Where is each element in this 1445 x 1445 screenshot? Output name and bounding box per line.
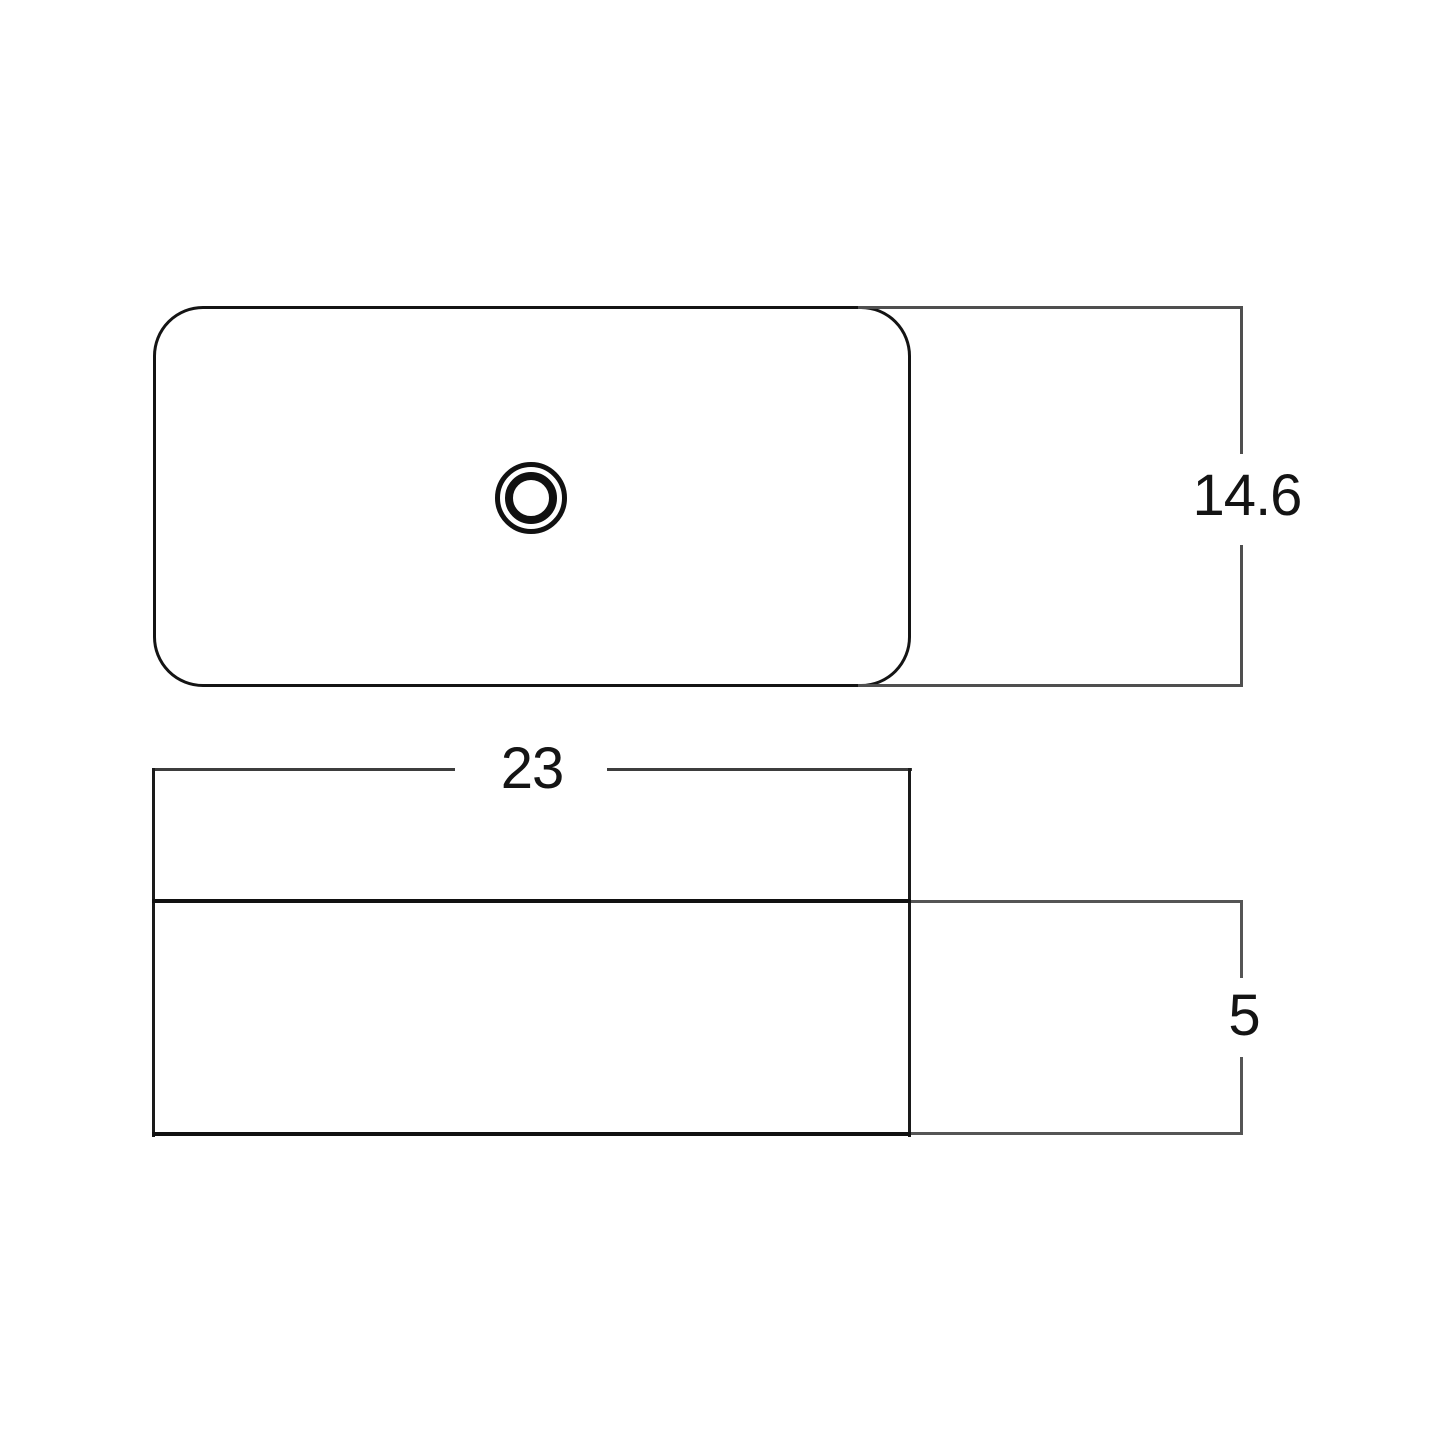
width-dimension-label: 23 [501,740,564,798]
drain-hole-icon [505,472,557,524]
depth-dimension-label: 14.6 [1193,467,1302,525]
height-dimension-line-lower [1240,1057,1243,1135]
height-extension-line-top [911,900,1243,903]
depth-dimension-line-lower [1240,545,1243,687]
side-view-right-edge [908,768,911,1137]
height-dimension-line-upper [1240,900,1243,978]
technical-drawing-canvas: 14.6 23 5 [0,0,1445,1445]
side-view-bottom-line [152,1132,911,1136]
width-dimension-line-right [607,768,912,771]
height-dimension-label: 5 [1228,987,1259,1045]
width-dimension-line-left [152,768,455,771]
depth-extension-line-top [858,306,1243,309]
side-view-rim-line [152,899,911,903]
depth-extension-line-bottom [858,684,1243,687]
side-view-left-edge [152,768,155,1137]
depth-dimension-line-upper [1240,306,1243,454]
height-extension-line-bottom [911,1132,1243,1135]
